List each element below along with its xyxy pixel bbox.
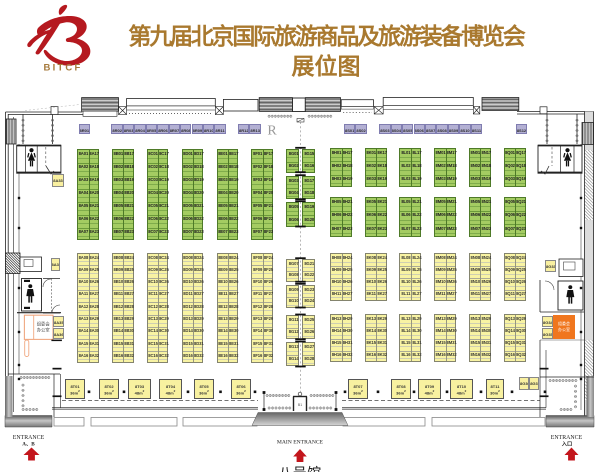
svg-text:B1: B1 [298, 403, 302, 407]
svg-text:组委会: 组委会 [37, 321, 51, 328]
svg-text:ENTRANCE: ENTRANCE [551, 435, 583, 441]
svg-text:入口: 入口 [561, 441, 572, 448]
svg-text:ENTRANCE: ENTRANCE [13, 435, 45, 441]
svg-text:A、B: A、B [22, 442, 35, 448]
svg-text:组委会: 组委会 [558, 320, 570, 326]
svg-text:MAIN ENTRANCE: MAIN ENTRANCE [277, 440, 324, 446]
svg-text:BITCF: BITCF [44, 63, 83, 74]
svg-text:办公室: 办公室 [37, 327, 51, 334]
svg-text:办公室: 办公室 [558, 326, 570, 332]
svg-text:R: R [267, 124, 277, 139]
